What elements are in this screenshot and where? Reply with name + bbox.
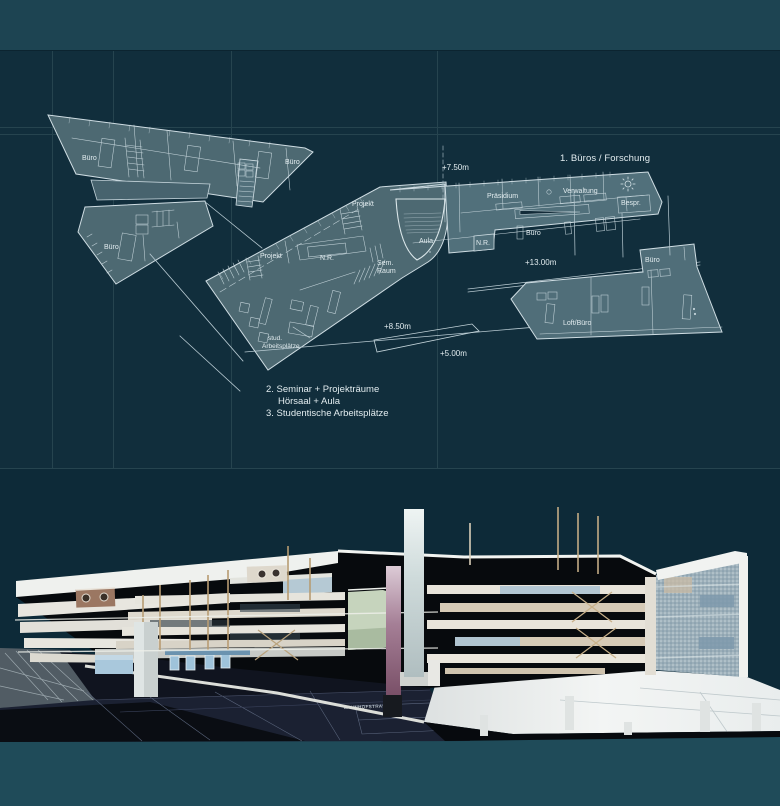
svg-text:Raum: Raum [377,268,396,275]
svg-text:Büro: Büro [285,159,300,166]
svg-text:Bespr.: Bespr. [621,200,641,207]
svg-text:Projekt: Projekt [352,201,374,208]
svg-text:2. Seminar + Projekträume: 2. Seminar + Projekträume [266,384,379,395]
svg-text:1. Büros / Forschung: 1. Büros / Forschung [560,153,650,164]
svg-text:Hörsaal + Aula: Hörsaal + Aula [278,396,341,407]
svg-text:Büro: Büro [104,244,119,251]
svg-text:+7.50m: +7.50m [442,163,469,172]
svg-text:Projekt: Projekt [260,253,282,260]
svg-text:N.R.: N.R. [320,255,334,262]
svg-text:3. Studentische Arbeitsplätze: 3. Studentische Arbeitsplätze [266,408,389,419]
svg-text:+5.00m: +5.00m [440,349,467,358]
svg-text:N.R.: N.R. [476,240,490,247]
svg-text:Büro: Büro [645,257,660,264]
svg-text:Sem.: Sem. [377,260,393,267]
svg-text:Büro: Büro [82,155,97,162]
svg-text:+8.50m: +8.50m [384,322,411,331]
svg-text:Büro: Büro [526,230,541,237]
svg-text:Loft/Büro: Loft/Büro [563,320,592,327]
svg-text:stud.: stud. [268,335,282,342]
svg-text:Präsidium: Präsidium [487,193,518,200]
svg-text:Aula: Aula [419,238,433,245]
svg-text:Verwaltung: Verwaltung [563,188,598,195]
svg-text:+13.00m: +13.00m [525,258,557,267]
svg-text:Arbeitsplätze: Arbeitsplätze [262,343,300,350]
